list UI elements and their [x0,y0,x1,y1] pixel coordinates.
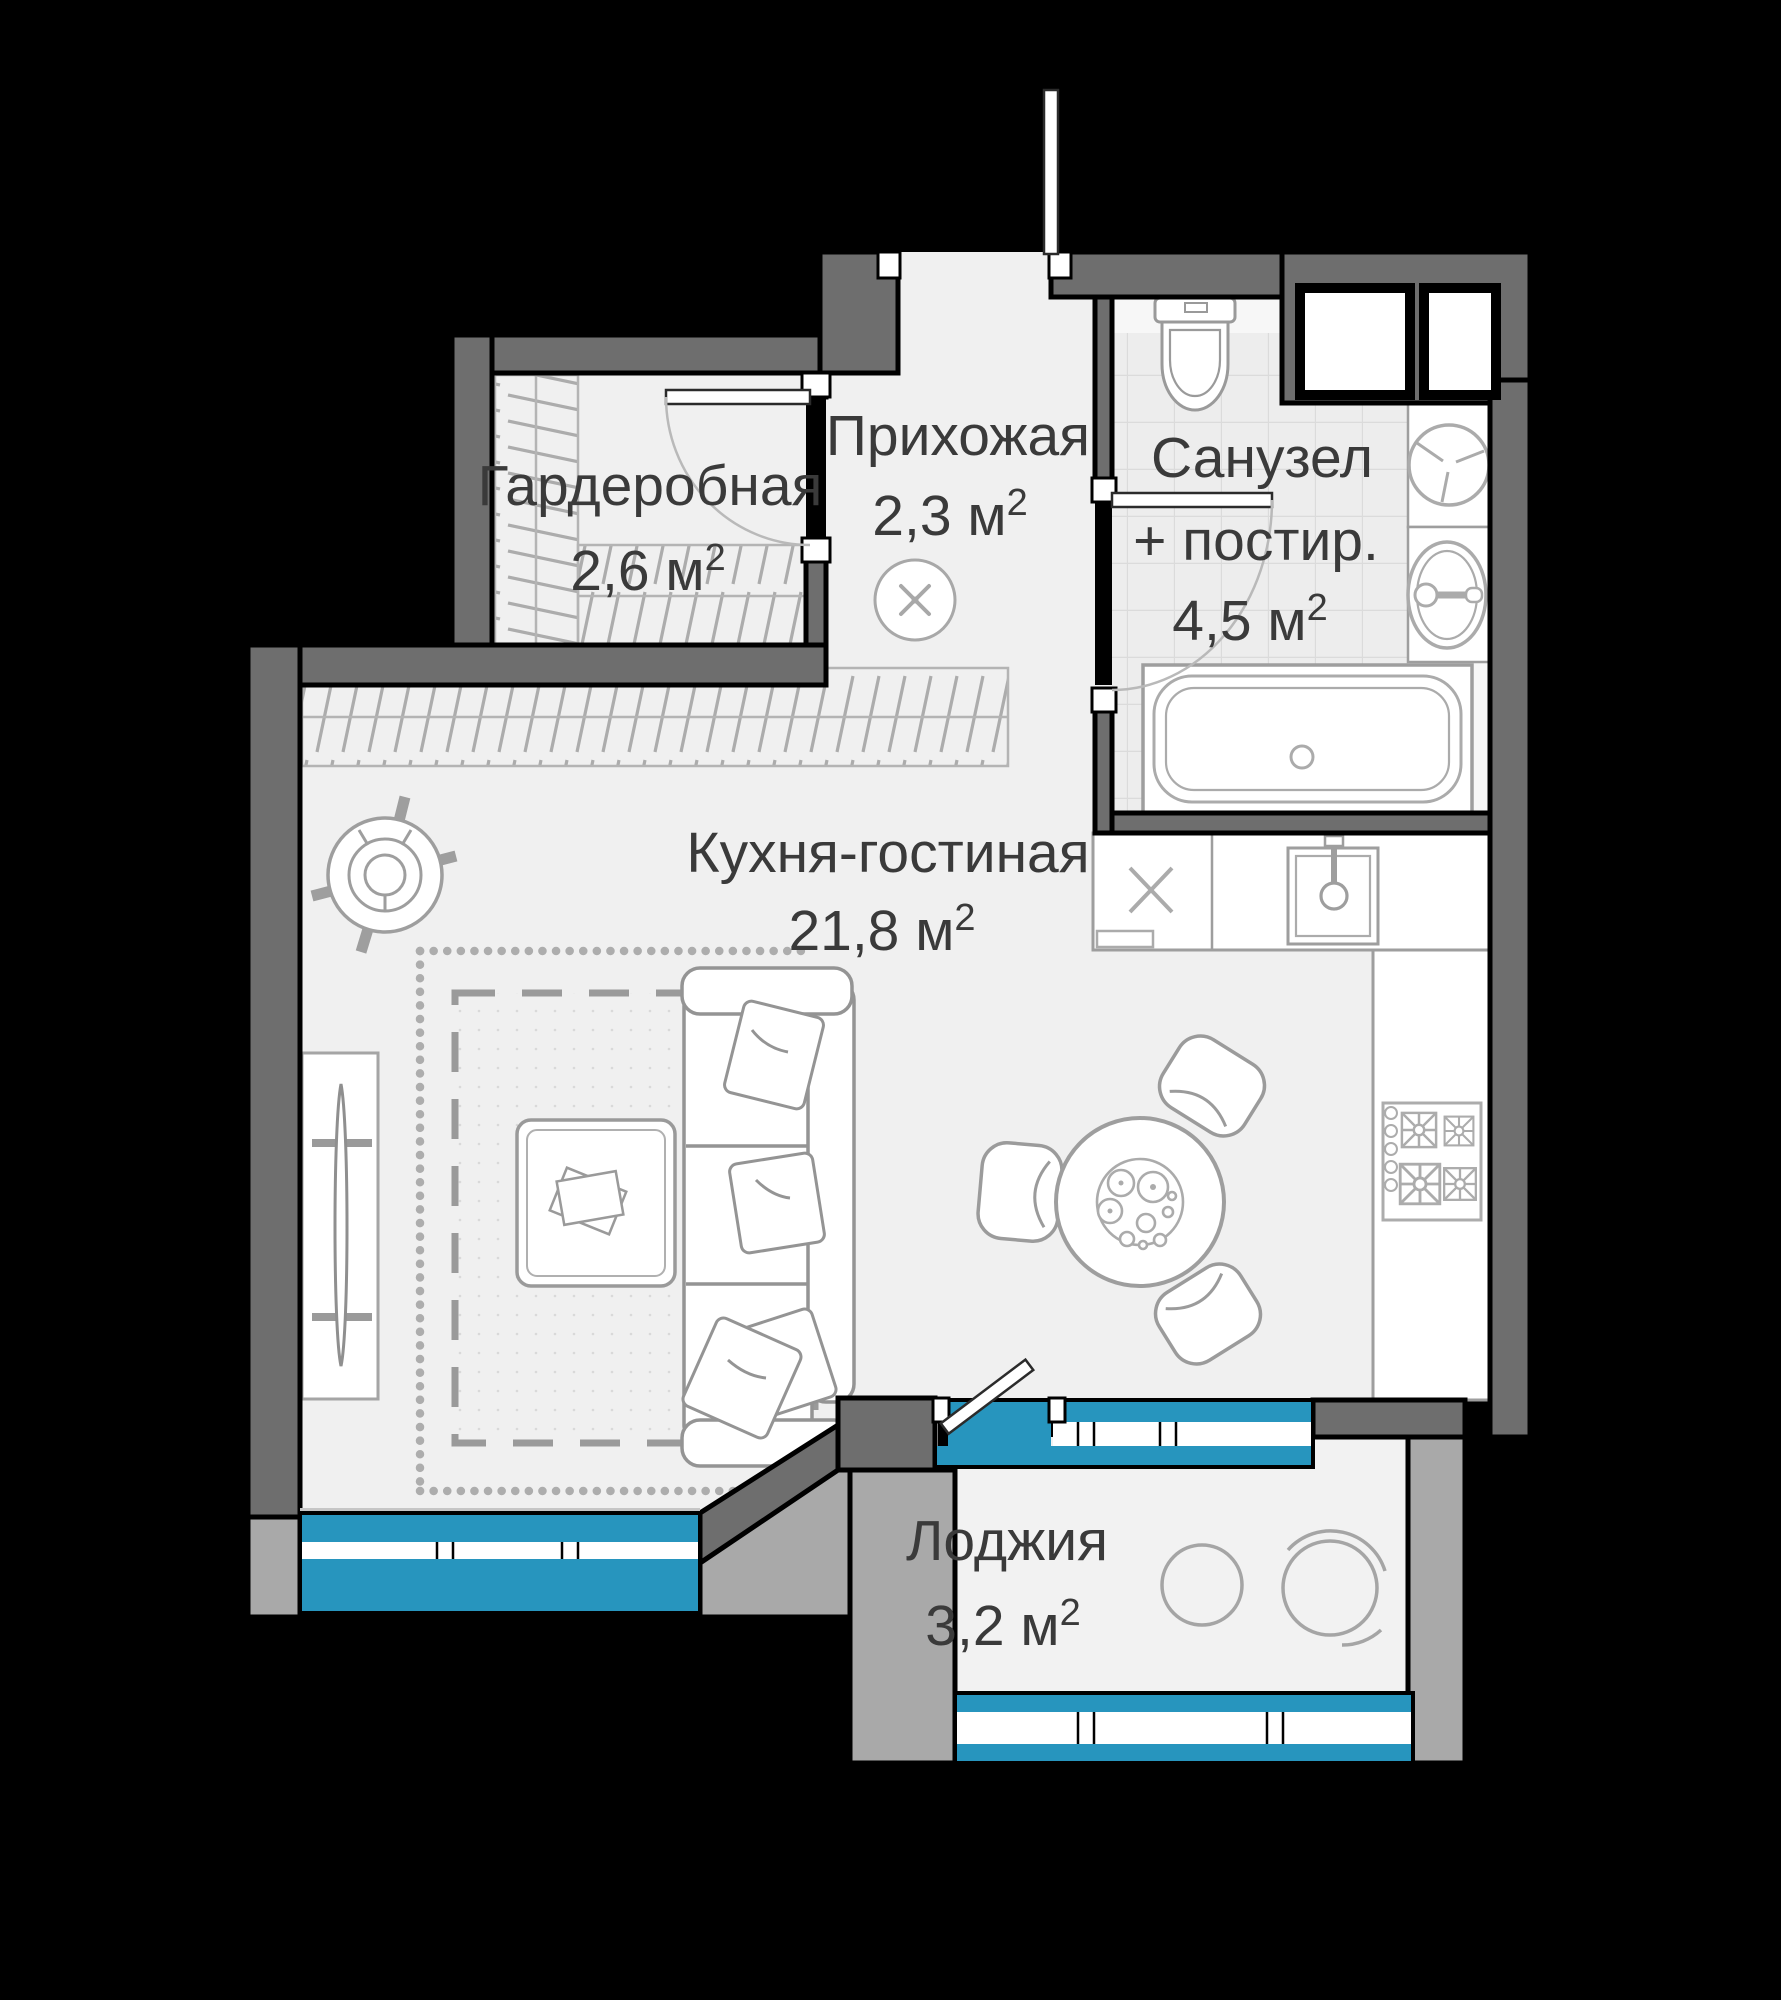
coffee-table [517,1120,675,1286]
floor-plan-canvas: Гардеробная 2,6 м2 Прихожая 2,3 м2 Сануз… [0,0,1781,2000]
kitchen-sink [1288,836,1378,944]
wall-bath-left-upper [1095,297,1112,500]
window-living-left [300,1508,700,1613]
vent-shaft [1300,288,1410,395]
stove [1383,1103,1481,1220]
counter-board [1097,931,1153,947]
label-loggia-area: 3,2 м2 [925,1592,1080,1658]
label-hallway-name: Прихожая [826,404,1090,468]
label-bathroom-area: 4,5 м2 [1172,587,1327,653]
tv-stand [302,1053,378,1399]
wall-exterior-left [248,1517,300,1617]
label-wardrobe-area: 2,6 м2 [570,537,725,603]
ventilation-shafts [1300,288,1496,395]
sofa [680,968,854,1466]
label-wardrobe-name: Гардеробная [478,454,823,518]
door-jamb [1049,1398,1065,1422]
window-loggia [955,1693,1413,1763]
floor-plan: Гардеробная 2,6 м2 Прихожая 2,3 м2 Сануз… [0,0,1781,2000]
bathroom-sink [1408,527,1490,662]
spotlight-icon [875,560,955,640]
drain-icon [1291,746,1313,768]
label-kitchen-living-name: Кухня-гостиная [686,821,1089,885]
label-bathroom-name2: + постир. [1133,509,1379,573]
faucet-icon [1325,836,1343,846]
dining-chair [976,1141,1064,1244]
wall-kitchen-bottom [1313,1400,1465,1437]
wardrobe-door-leaf [666,390,810,404]
label-loggia-name: Лоджия [906,1509,1108,1573]
wall-right [1490,380,1530,1437]
entry-gap-floor [898,252,1051,302]
wall-living-left [248,645,300,1517]
book [557,1171,624,1225]
wall-living-top [248,645,826,685]
label-bathroom-name: Санузел [1151,426,1373,490]
bathtub [1143,665,1472,813]
wall-wardrobe-top [452,335,830,373]
label-hallway-area: 2,3 м2 [872,482,1027,548]
wall-bath-bottom [1112,813,1490,833]
bathroom-door-leaf [1112,493,1272,507]
tv [335,1084,347,1366]
wall-top-right [1051,252,1282,297]
entrance-door [878,90,1071,278]
wall-loggia-right [1408,1437,1465,1763]
entrance-door-leaf [1044,90,1058,254]
label-kitchen-living-area: 21,8 м2 [788,897,975,963]
wall-balcony-pier [838,1398,935,1470]
vent-shaft [1424,288,1496,395]
washing-machine [1408,403,1490,527]
